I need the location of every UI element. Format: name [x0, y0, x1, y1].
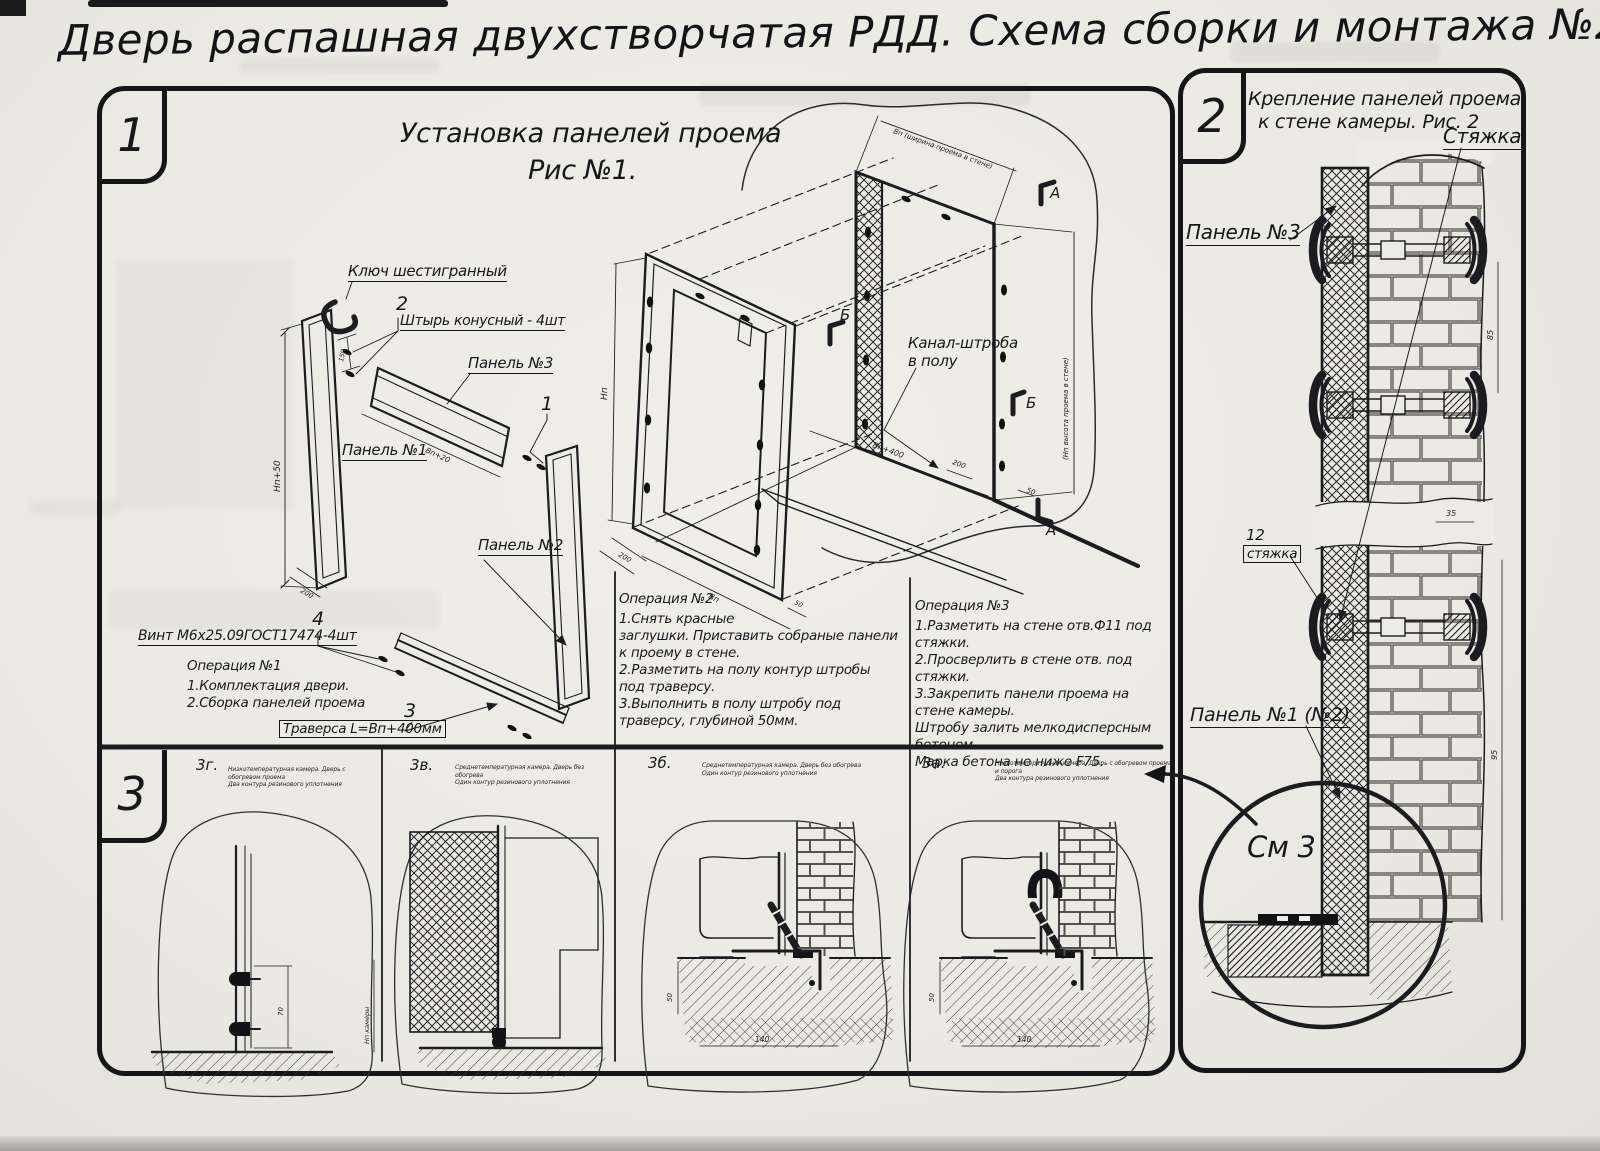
caption-line: Среднетемпературная камера. Дверь без об… — [702, 762, 872, 770]
section-caption-3v: Среднетемпературная камера. Дверь без об… — [455, 764, 605, 787]
threshold-heater-loop — [1028, 869, 1063, 898]
scanned-sheet: Дверь распашная двухстворчатая РДД. Схем… — [0, 0, 1600, 1151]
op2-line: заглушки. Приставить собраные панели — [619, 628, 904, 645]
label-see-detail-3: См 3 — [1247, 830, 1316, 864]
section-code-3a: 3а. — [922, 754, 946, 772]
dim-frame-200: 200 — [617, 551, 633, 565]
dim-70: 70 — [277, 1007, 285, 1016]
fig1-title: Установка панелей проема — [400, 118, 781, 149]
label-tie-rod: Стяжка — [1443, 124, 1521, 150]
fig3-sections: 70 Нп камеры — [102, 747, 1161, 1096]
label-floor-channel-2: в полу — [908, 352, 957, 370]
op2-line: траверсу, глубиной 50мм. — [619, 713, 904, 730]
caption-line: Один контур резинового уплотнения — [455, 779, 605, 787]
traverse-outline — [401, 633, 569, 708]
hex-key-icon — [324, 302, 355, 332]
op3-line: стяжки. — [915, 669, 1165, 686]
dim-140-3a: 140 — [1017, 1035, 1032, 1044]
section-marker-b2: Б — [1026, 394, 1036, 412]
op2-title: Операция №2 — [619, 591, 904, 608]
frame-opening — [664, 290, 766, 556]
panel2-outline — [546, 446, 589, 709]
dim-opening-height: (Нп высота проема в стене) — [1062, 357, 1070, 460]
fig1-assembled-view: Нп 200 Вп 50 — [600, 103, 1138, 629]
op3-line: 2.Просверлить в стене отв. под — [915, 652, 1165, 669]
op1-title: Операция №1 — [187, 658, 365, 675]
dim-opening-width: Вп (ширина проема в стене) — [892, 127, 994, 171]
section-marker-a1: А — [1049, 184, 1060, 202]
dim-frame-height: Нп — [600, 387, 610, 400]
label-tie-boxed: стяжка — [1243, 545, 1301, 563]
caption-line: Один контур резинового уплотнения — [702, 770, 872, 778]
fig2-wall-fixing: 35 85 95 — [1144, 140, 1502, 1027]
label-panel3-fig2: Панель №3 — [1186, 220, 1300, 246]
callout-2: 2 — [396, 293, 408, 315]
dim-140-3b: 140 — [755, 1035, 770, 1044]
label-cone-pin: Штырь конусный - 4шт — [400, 313, 565, 331]
label-hex-key: Ключ шестигранный — [348, 262, 507, 282]
fig2-title-1: Крепление панелей проема — [1248, 88, 1521, 110]
label-panel3: Панель №3 — [468, 354, 553, 374]
threshold-profile — [1258, 914, 1338, 925]
dim-np-camera: Нп камеры — [363, 1007, 371, 1044]
op3-line: 1.Разметить на стене отв.Ф11 под — [915, 618, 1165, 635]
callout-3: 3 — [404, 700, 416, 722]
dim-50-3a: 50 — [928, 993, 936, 1002]
section-3g-drawing: 70 Нп камеры — [150, 812, 374, 1096]
dim-panel1-height: Нп+50 — [273, 460, 283, 492]
label-screw: Винт М6х25.09ГОСТ17474-4шт — [138, 628, 357, 646]
caption-line: Низкотемпературная камера. Дверь с обогр… — [995, 760, 1175, 775]
op3-line: Штробу залить мелкодисперсным бетоном — [915, 720, 1165, 754]
dim-channel-length: Вп+400 — [871, 440, 905, 460]
op2-line: 1.Снять красные — [619, 611, 904, 628]
section-code-3v: 3в. — [410, 756, 433, 774]
callout-12: 12 — [1246, 526, 1265, 546]
caption-line: Два контура резинового уплотнения — [228, 781, 378, 789]
floor-channel — [762, 489, 1006, 580]
dim-35: 35 — [1446, 509, 1456, 518]
section-3v-drawing — [395, 816, 608, 1093]
callout-4: 4 — [312, 608, 324, 630]
dim-85: 85 — [1486, 330, 1495, 340]
section-3b-drawing: 50 140 — [642, 821, 894, 1092]
dim-panel1-bottom: 200 — [299, 587, 315, 601]
section-3a-drawing: 50 140 — [904, 821, 1156, 1092]
dim-50-3b: 50 — [666, 993, 674, 1002]
technical-linework: Нп+50 150 Вп+20 — [0, 0, 1600, 1151]
op2-line: к проему в стене. — [619, 645, 904, 662]
op2-line: под траверсу. — [619, 679, 904, 696]
op3-line: стяжки. — [915, 635, 1165, 652]
operation-3-block: Операция №3 1.Разметить на стене отв.Ф11… — [915, 598, 1165, 771]
operation-2-block: Операция №2 1.Снять красные заглушки. Пр… — [619, 591, 904, 730]
section-code-3g: 3г. — [196, 756, 218, 774]
caption-line: Два контура резинового уплотнения — [995, 775, 1175, 783]
section-marker-b1: Б — [840, 306, 850, 324]
op3-title: Операция №3 — [915, 598, 1165, 615]
op3-line: 3.Закрепить панели проема на стене камер… — [915, 686, 1165, 720]
dim-95: 95 — [1490, 750, 1499, 760]
op2-line: 3.Выполнить в полу штробу под — [619, 696, 904, 713]
label-panel2: Панель №2 — [478, 536, 563, 556]
label-floor-channel-1: Канал-штроба — [908, 334, 1018, 352]
callout-1: 1 — [541, 393, 553, 415]
label-panel1-2: Панель №1 (№2) — [1190, 704, 1350, 728]
caption-line: Среднетемпературная камера. Дверь без об… — [455, 764, 605, 779]
dim-channel-200: 200 — [951, 458, 967, 470]
section-caption-3g: Низкотемпературная камера. Дверь с обогр… — [228, 766, 378, 789]
fig1-subtitle: Рис №1. — [528, 155, 637, 186]
caption-line: Низкотемпературная камера. Дверь с обогр… — [228, 766, 378, 781]
grout-block — [1228, 925, 1322, 977]
dim-pin-spacing: 150 — [337, 349, 347, 363]
op1-line: 2.Сборка панелей проема — [187, 695, 365, 712]
section-code-3b: 3б. — [648, 754, 672, 772]
label-traverse: Траверса L=Вп+400мм — [279, 720, 446, 738]
section-caption-3a: Низкотемпературная камера. Дверь с обогр… — [995, 760, 1175, 783]
label-panel1: Панель №1 — [342, 441, 427, 461]
section-caption-3b: Среднетемпературная камера. Дверь без об… — [702, 762, 872, 777]
frame-outer — [633, 254, 795, 600]
op1-line: 1.Комплектация двери. — [187, 678, 365, 695]
panel-crosshatch-strip — [1322, 168, 1368, 975]
wall-channel-strip — [856, 172, 882, 455]
operation-1-block: Операция №1 1.Комплектация двери. 2.Сбор… — [187, 658, 365, 712]
op2-line: 2.Разметить на полу контур штробы — [619, 662, 904, 679]
